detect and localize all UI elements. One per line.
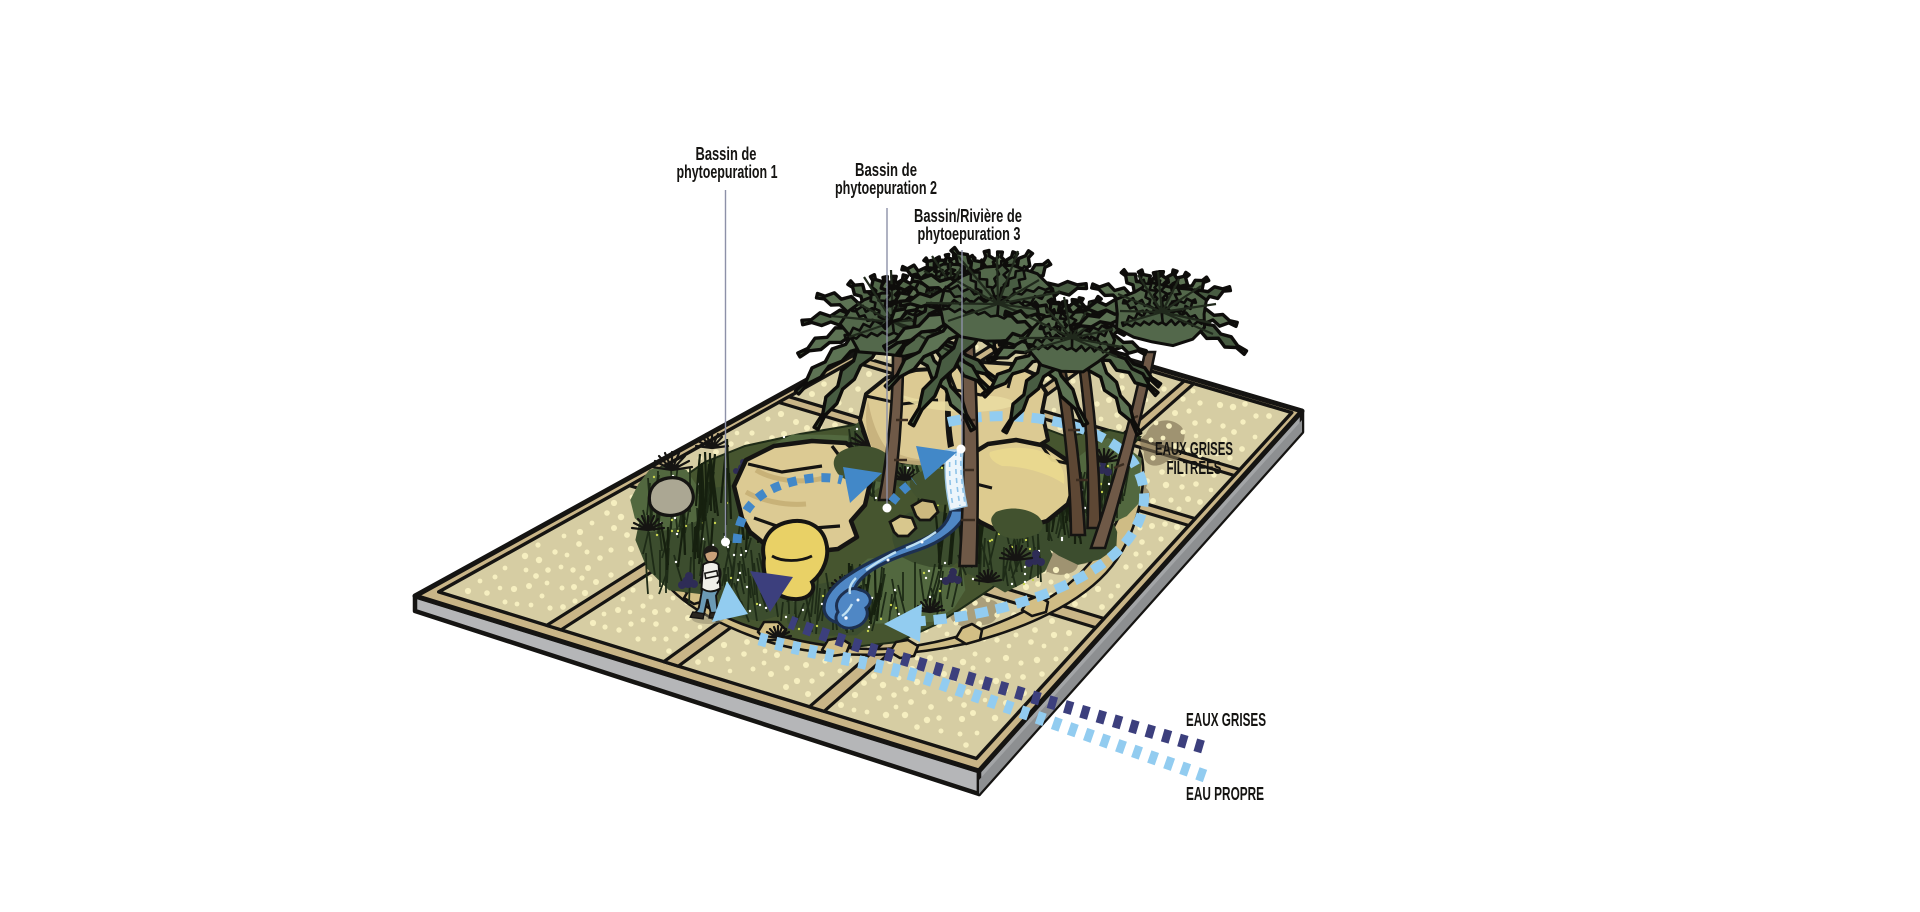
svg-text:EAU PROPRE: EAU PROPRE xyxy=(1186,784,1264,804)
svg-text:Bassin/Rivière de: Bassin/Rivière de xyxy=(914,206,1022,226)
svg-text:phytoepuration 1: phytoepuration 1 xyxy=(677,162,778,182)
svg-text:Bassin de: Bassin de xyxy=(696,144,757,164)
svg-text:Bassin de: Bassin de xyxy=(855,160,917,180)
svg-text:EAUX GRISES: EAUX GRISES xyxy=(1155,439,1233,459)
svg-text:EAUX GRISES: EAUX GRISES xyxy=(1186,710,1266,730)
svg-text:phytoepuration 2: phytoepuration 2 xyxy=(835,178,937,198)
svg-text:phytoepuration 3: phytoepuration 3 xyxy=(918,224,1021,244)
svg-text:FILTRÉES: FILTRÉES xyxy=(1167,457,1222,478)
